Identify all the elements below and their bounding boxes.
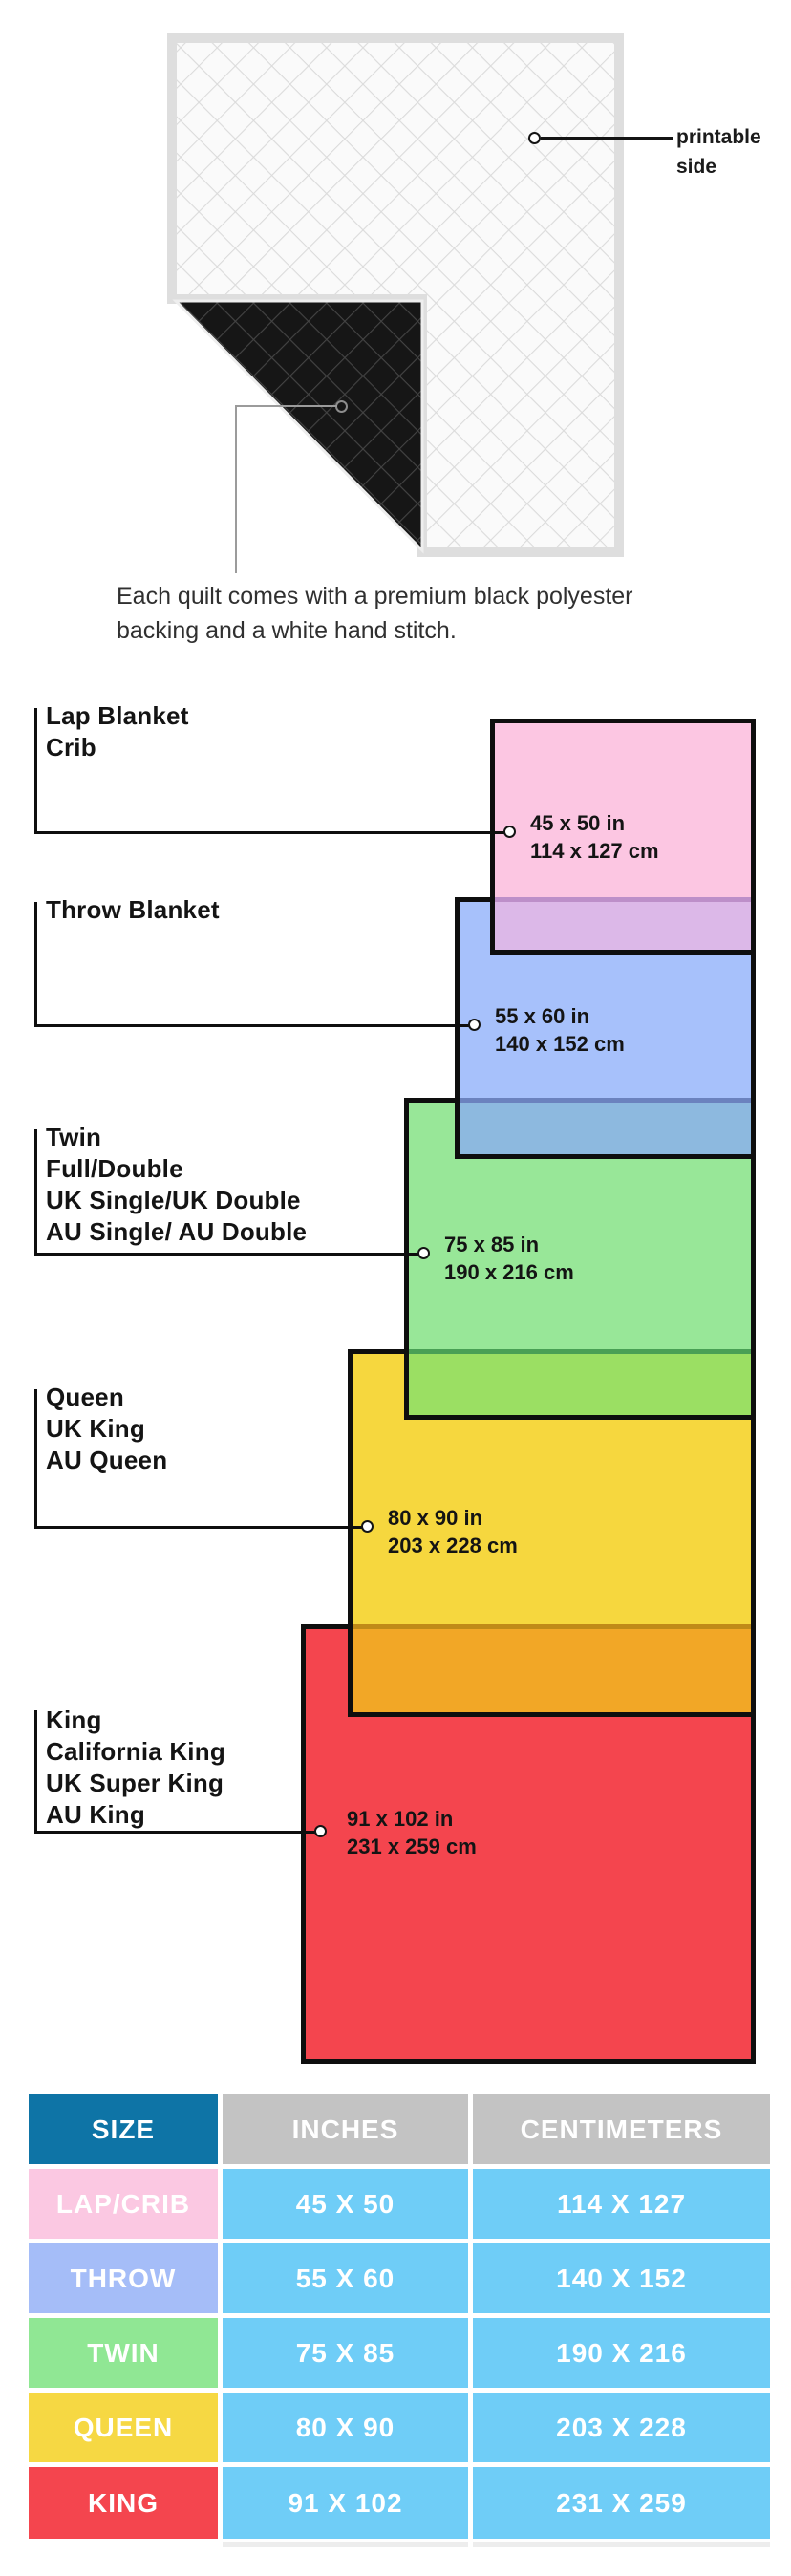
label-king-line2: California King (46, 1736, 225, 1768)
label-king-line4: AU King (46, 1799, 225, 1831)
label-queen-line1: Queen (46, 1382, 167, 1413)
printable-side-callout-line (541, 137, 673, 140)
callout-king-hline (34, 1831, 315, 1834)
size-text-throw-in: 55 x 60 in (495, 1002, 625, 1030)
callout-queen-hline (34, 1526, 362, 1529)
label-king: King California King UK Super King AU Ki… (46, 1705, 225, 1831)
callout-king-dot-icon (314, 1825, 327, 1837)
callout-twin-dot-icon (417, 1247, 430, 1259)
label-lap-crib: Lap Blanket Crib (46, 700, 189, 763)
quilt-caption: Each quilt comes with a premium black po… (117, 579, 633, 648)
size-text-lap-in: 45 x 50 in (530, 809, 659, 837)
printable-side-callout-dot-icon (528, 132, 541, 144)
backing-callout-line-vertical (235, 405, 237, 573)
size-text-queen: 80 x 90 in 203 x 228 cm (388, 1504, 518, 1559)
callout-twin-hline (34, 1253, 418, 1256)
quilt-black-backing-fold (176, 301, 422, 550)
callout-throw-dot-icon (468, 1019, 481, 1031)
label-twin-line2: Full/Double (46, 1153, 307, 1185)
callout-throw-vline (34, 902, 37, 1025)
size-text-twin-cm: 190 x 216 cm (444, 1258, 574, 1286)
table-row-twin-label: TWIN (29, 2318, 218, 2388)
quilt-caption-line2: backing and a white hand stitch. (117, 613, 633, 648)
size-text-queen-in: 80 x 90 in (388, 1504, 518, 1532)
size-text-king: 91 x 102 in 231 x 259 cm (347, 1805, 477, 1860)
label-twin-line4: AU Single/ AU Double (46, 1216, 307, 1248)
label-lap-line2: Crib (46, 732, 189, 763)
table-header-inches: INCHES (223, 2094, 468, 2164)
label-throw: Throw Blanket (46, 894, 220, 926)
table-row-lap-inches: 45 X 50 (223, 2169, 468, 2239)
label-twin-line1: Twin (46, 1122, 307, 1153)
backing-callout-line-horizontal (236, 405, 337, 407)
label-twin: Twin Full/Double UK Single/UK Double AU … (46, 1122, 307, 1248)
printable-side-label-line1: printable (676, 122, 761, 152)
callout-throw-hline (34, 1024, 469, 1027)
label-lap-line1: Lap Blanket (46, 700, 189, 732)
size-text-queen-cm: 203 x 228 cm (388, 1532, 518, 1559)
label-queen-line2: UK King (46, 1413, 167, 1445)
table-header-centimeters: CENTIMETERS (473, 2094, 770, 2164)
table-row-throw-inches: 55 X 60 (223, 2243, 468, 2313)
label-throw-line1: Throw Blanket (46, 894, 220, 926)
quilt-caption-line1: Each quilt comes with a premium black po… (117, 579, 633, 613)
callout-lap-hline (34, 831, 504, 834)
callout-queen-dot-icon (361, 1520, 374, 1533)
callout-lap-dot-icon (503, 826, 516, 838)
quilt-size-chart-page: printable side Each quilt comes with a p… (0, 0, 791, 2576)
label-queen-line3: AU Queen (46, 1445, 167, 1476)
callout-lap-vline (34, 708, 37, 832)
table-row-lap-cm: 114 X 127 (473, 2169, 770, 2239)
label-queen: Queen UK King AU Queen (46, 1382, 167, 1476)
table-bottom-shadow-centimeters (473, 2542, 770, 2547)
size-text-throw-cm: 140 x 152 cm (495, 1030, 625, 1058)
size-text-twin-in: 75 x 85 in (444, 1231, 574, 1258)
table-bottom-shadow-inches (223, 2542, 468, 2547)
size-text-lap: 45 x 50 in 114 x 127 cm (530, 809, 659, 865)
table-row-lap-label: LAP/CRIB (29, 2169, 218, 2239)
label-twin-line3: UK Single/UK Double (46, 1185, 307, 1216)
callout-twin-vline (34, 1129, 37, 1254)
table-header-size: SIZE (29, 2094, 218, 2164)
table-row-queen-inches: 80 X 90 (223, 2393, 468, 2462)
printable-side-label: printable side (676, 122, 761, 182)
size-text-twin: 75 x 85 in 190 x 216 cm (444, 1231, 574, 1286)
size-text-lap-cm: 114 x 127 cm (530, 837, 659, 865)
table-row-queen-label: QUEEN (29, 2393, 218, 2462)
table-row-throw-label: THROW (29, 2243, 218, 2313)
callout-queen-vline (34, 1389, 37, 1527)
table-row-king-cm: 231 X 259 (473, 2467, 770, 2539)
table-row-throw-cm: 140 X 152 (473, 2243, 770, 2313)
label-king-line1: King (46, 1705, 225, 1736)
size-text-throw: 55 x 60 in 140 x 152 cm (495, 1002, 625, 1058)
table-row-queen-cm: 203 X 228 (473, 2393, 770, 2462)
table-row-twin-inches: 75 X 85 (223, 2318, 468, 2388)
size-text-king-cm: 231 x 259 cm (347, 1833, 477, 1860)
size-text-king-in: 91 x 102 in (347, 1805, 477, 1833)
table-row-king-inches: 91 X 102 (223, 2467, 468, 2539)
table-row-king-label: KING (29, 2467, 218, 2539)
size-table: SIZE INCHES CENTIMETERS LAP/CRIB 45 X 50… (29, 2094, 770, 2539)
callout-king-vline (34, 1710, 37, 1832)
quilt-illustration (162, 29, 629, 562)
printable-side-label-line2: side (676, 152, 761, 182)
table-row-twin-cm: 190 X 216 (473, 2318, 770, 2388)
label-king-line3: UK Super King (46, 1768, 225, 1799)
